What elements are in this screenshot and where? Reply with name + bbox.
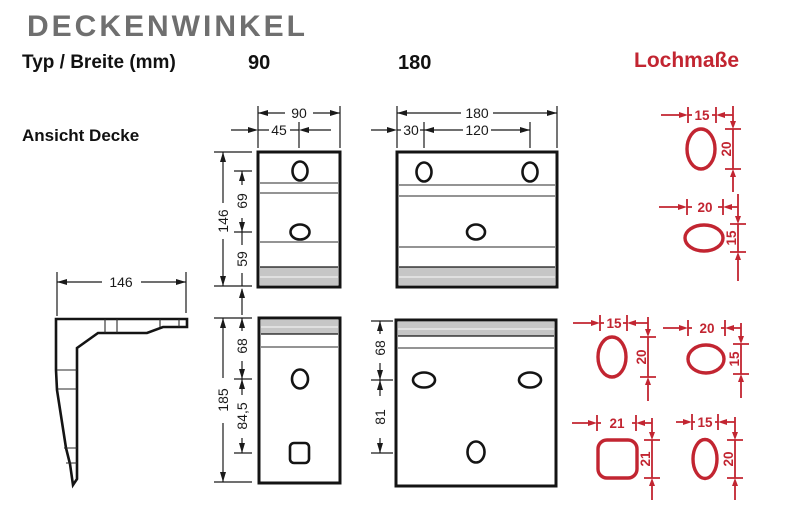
hole-width-dim: 15 [694,108,710,123]
dim-hole-top-68: 68 [372,340,388,356]
hole-height-dim: 15 [727,351,742,367]
hole-detail-slot-20x15-wall: 20 15 [663,320,749,398]
slot-vertical-hole [293,162,308,181]
ceiling-view-90: 90 45 146 69 59 [214,105,340,315]
hole-height-dim: 20 [721,451,736,466]
hole-height-dim: 21 [638,451,653,467]
dim-hole-pitch-84-5: 84,5 [234,402,250,429]
dim-hole-offset-30: 30 [403,122,419,138]
dim-height-146: 146 [215,209,231,233]
hole-detail-slot-20x15: 20 15 [659,194,746,281]
hole-detail-slot-15x20-wall: 15 20 [573,315,656,401]
slot-vertical-hole [523,163,538,182]
hole-height-dim: 20 [719,141,734,156]
dim-hole-top-68: 68 [234,338,250,354]
slot-horizontal-hole [519,373,541,388]
dim-hole-offset-45: 45 [271,122,287,138]
hole-width-dim: 15 [606,316,622,331]
hole-height-dim: 15 [724,230,739,246]
square-hole [290,443,309,463]
deckenwinkel-diagram: DECKENWINKEL Typ / Breite (mm) 90 180 Lo… [0,0,800,511]
hole-width-dim: 15 [697,415,713,430]
slot-horizontal-hole [467,225,485,240]
dim-height-185: 185 [215,388,231,412]
dim-hole-pitch-120: 120 [465,122,489,138]
hole-detail-slot-15x20-bottom: 15 20 [676,414,743,500]
slot-horizontal-hole [291,225,310,240]
side-depth-dim: 146 [109,274,133,290]
dim-width-180: 180 [465,105,489,121]
hole-detail-slot-15x20: 15 20 [661,106,741,192]
dim-hole-pitch-69: 69 [234,193,250,209]
technical-drawing-canvas: 146 90 45 146 [0,0,800,511]
hole-width-dim: 21 [609,416,625,431]
hole-detail-square-21x21: 21 21 [572,415,660,500]
wall-view-90: 185 68 84,5 [214,318,340,483]
ceiling-view-180: 180 30 120 [371,105,557,287]
slot-horizontal-hole [413,373,435,388]
dim-hole-pitch-81: 81 [372,409,388,425]
side-view-drawing: 146 [56,272,187,485]
hole-width-dim: 20 [697,200,712,215]
hole-height-dim: 20 [634,349,649,364]
dim-hole-bottom-59: 59 [234,251,250,267]
dim-width-90: 90 [291,105,307,121]
slot-vertical-hole [292,370,308,389]
slot-vertical-hole [468,442,485,463]
wall-view-180: 68 81 [371,320,556,486]
hole-width-dim: 20 [699,321,714,336]
slot-vertical-hole [417,163,432,182]
